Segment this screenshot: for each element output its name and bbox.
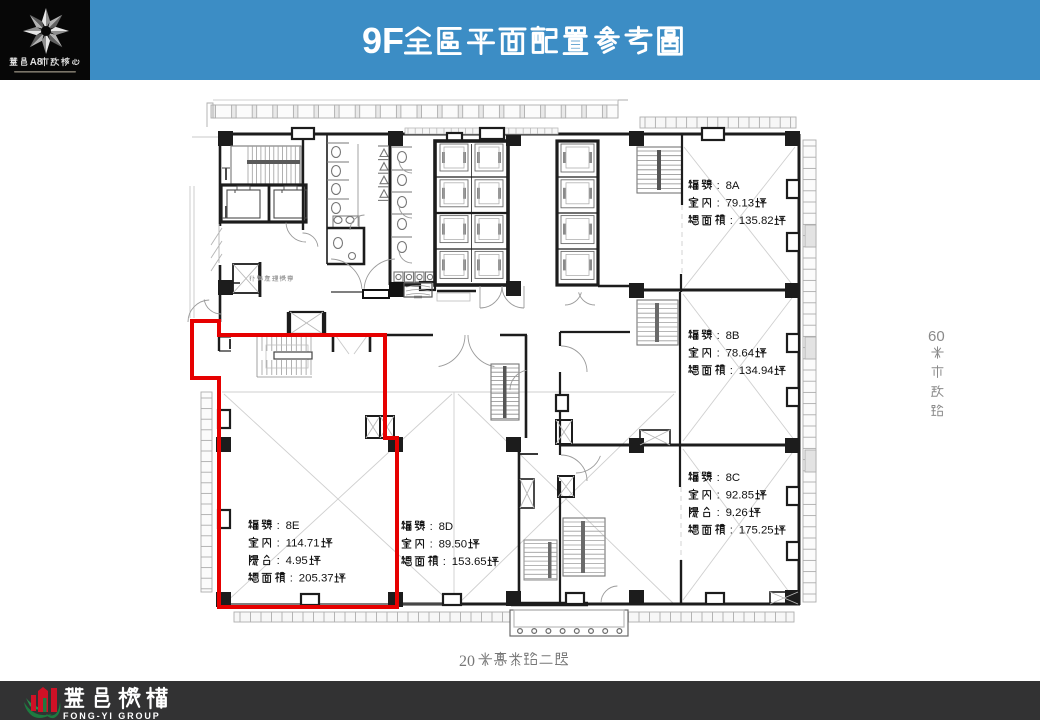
- svg-text::: :: [430, 538, 433, 550]
- svg-text::: :: [730, 525, 733, 537]
- svg-text:78.64: 78.64: [726, 347, 755, 359]
- svg-text::: :: [430, 521, 433, 533]
- svg-text::: :: [717, 197, 720, 209]
- svg-text:79.13: 79.13: [726, 197, 755, 209]
- svg-text::: :: [730, 215, 733, 227]
- svg-text:135.82: 135.82: [739, 215, 774, 227]
- svg-text::: :: [717, 330, 720, 342]
- svg-text:8E: 8E: [286, 520, 300, 532]
- svg-text:92.85: 92.85: [726, 489, 755, 501]
- svg-text::: :: [717, 180, 720, 192]
- svg-text:153.65: 153.65: [452, 556, 487, 568]
- svg-text::: :: [717, 489, 720, 501]
- svg-text:205.37: 205.37: [299, 573, 334, 585]
- svg-text:8B: 8B: [726, 330, 740, 342]
- svg-text::: :: [290, 573, 293, 585]
- svg-text:9.26: 9.26: [726, 507, 748, 519]
- svg-text::: :: [730, 365, 733, 377]
- svg-text:FONG-YI GROUP: FONG-YI GROUP: [63, 711, 161, 720]
- svg-text:134.94: 134.94: [739, 365, 774, 377]
- svg-text:114.71: 114.71: [286, 537, 320, 549]
- svg-text::: :: [277, 537, 280, 549]
- svg-text::: :: [717, 347, 720, 359]
- svg-text:89.50: 89.50: [439, 538, 468, 550]
- svg-text::: :: [443, 556, 446, 568]
- svg-text:20: 20: [459, 653, 475, 670]
- svg-text:60: 60: [928, 328, 945, 345]
- svg-text:8A: 8A: [726, 180, 740, 192]
- svg-text:8C: 8C: [726, 472, 741, 484]
- svg-text::: :: [277, 555, 280, 567]
- svg-text::: :: [717, 472, 720, 484]
- svg-text:4.95: 4.95: [286, 555, 308, 567]
- svg-text:175.25: 175.25: [739, 525, 774, 537]
- svg-text::: :: [717, 507, 720, 519]
- svg-text::: :: [277, 520, 280, 532]
- svg-text:9F: 9F: [362, 20, 404, 61]
- svg-text:8D: 8D: [439, 521, 454, 533]
